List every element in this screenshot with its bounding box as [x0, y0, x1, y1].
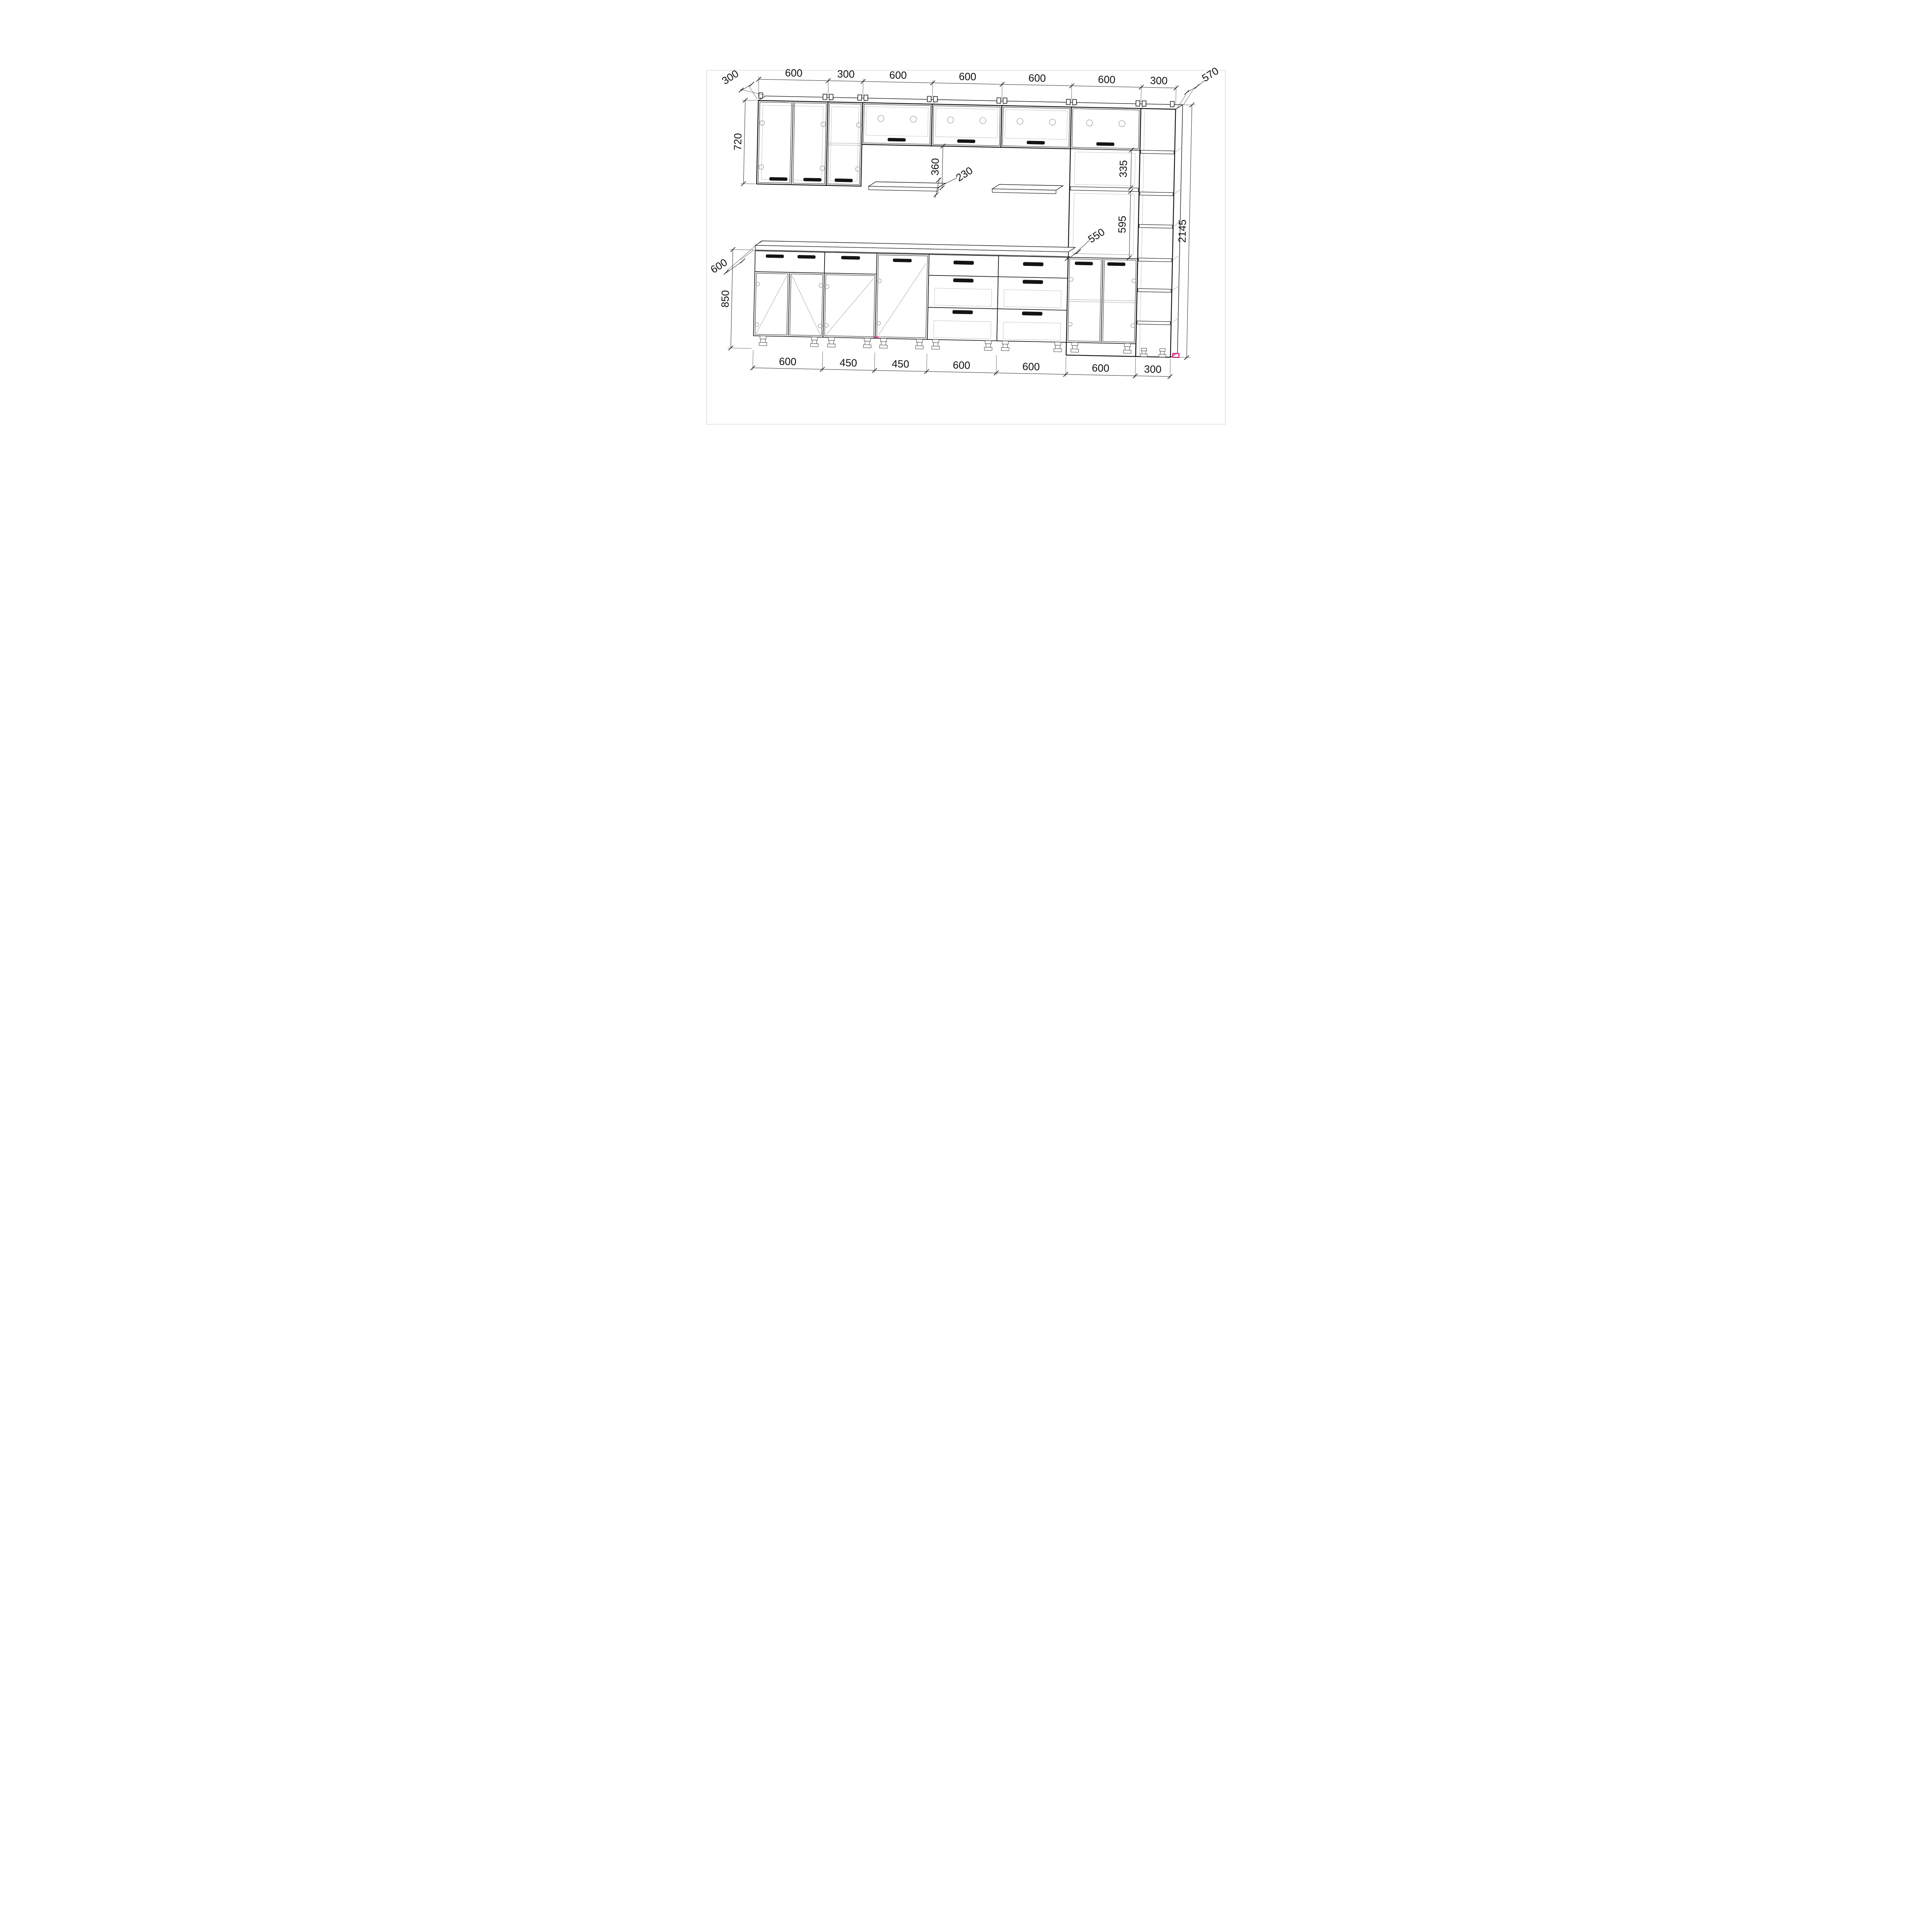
drawer-handle	[953, 279, 973, 282]
door-handle	[835, 179, 852, 182]
dim-tall-depth-label: 570	[1200, 65, 1221, 84]
dim-microwave-niche-label: 335	[1117, 160, 1129, 178]
flap-handle	[1096, 142, 1114, 146]
leg	[759, 336, 767, 345]
dim-top-3: 600	[889, 69, 907, 81]
leg	[827, 337, 835, 347]
drawer-unit-2	[997, 256, 1068, 342]
dim-top-6: 600	[1098, 73, 1116, 85]
leg	[879, 338, 888, 348]
leg	[1123, 344, 1131, 353]
door-handle	[769, 177, 787, 181]
drawer-handle	[952, 310, 973, 314]
dimension-bottom-chain: 600 450 450 600 600 600 300	[750, 350, 1173, 379]
drawing-sheet: 600 300 600 600 600 600 300	[706, 0, 1226, 426]
dim-oven-depth-label: 550	[1086, 226, 1107, 245]
flap-handle	[888, 138, 906, 141]
base-cabinet-600-sink	[753, 251, 825, 337]
column-base-cabinet	[1066, 257, 1138, 344]
dim-top-5: 600	[1028, 72, 1046, 84]
leg	[1071, 342, 1079, 352]
dim-oven-door-label: 595	[1116, 216, 1128, 233]
dimension-base-depth: 600	[708, 239, 762, 276]
leg	[1001, 341, 1009, 350]
dim-shelf-depth-label: 230	[954, 165, 975, 184]
drawer-handle	[841, 256, 860, 260]
flap-handle	[957, 139, 975, 143]
dim-bottom-6: 600	[1092, 362, 1110, 374]
dimension-oven-door: 595	[1116, 189, 1133, 260]
wall-cabinet-300	[826, 102, 863, 186]
dim-bottom-3: 450	[892, 358, 910, 370]
dim-wall-height-label: 720	[732, 133, 744, 151]
dimension-tall-depth: 570	[1176, 64, 1221, 110]
drawer-handle	[766, 255, 784, 258]
drawer-unit-1	[927, 254, 999, 341]
dim-base-height-label: 850	[719, 290, 731, 308]
drawer-handle	[1023, 280, 1043, 284]
leg	[863, 338, 871, 348]
dim-top-1: 600	[785, 67, 803, 79]
floating-shelf-right	[992, 184, 1063, 194]
dim-total-height-label: 2145	[1176, 219, 1188, 243]
floating-shelf-left	[869, 182, 945, 191]
dim-top-7: 300	[1150, 75, 1168, 87]
dim-bottom-7: 300	[1144, 363, 1162, 375]
dim-bottom-2: 450	[840, 357, 857, 369]
leg	[1159, 349, 1166, 357]
wall-cabinet-600-double	[757, 100, 828, 185]
dimension-microwave-niche: 335	[1117, 148, 1134, 190]
dim-bottom-5: 600	[1022, 361, 1040, 373]
door-handle	[803, 178, 821, 182]
drawer-handle	[1023, 262, 1043, 266]
leg	[1054, 342, 1062, 352]
dim-bottom-4: 600	[953, 359, 971, 371]
dim-bottom-1: 600	[779, 355, 797, 367]
dim-top-2: 300	[837, 68, 855, 80]
drawing-content: 600 300 600 600 600 600 300	[706, 54, 1221, 380]
door-handle	[893, 259, 912, 262]
drawer-handle	[954, 261, 974, 265]
drawer-handle	[798, 255, 815, 259]
leg	[984, 340, 992, 350]
flap-handle	[1027, 141, 1044, 145]
dimension-oven-depth: 550	[1065, 225, 1107, 262]
flap-cabinet-3	[1001, 105, 1071, 149]
door-handle	[1107, 262, 1125, 266]
door-handle	[1075, 262, 1093, 265]
drawer-handle	[1022, 311, 1042, 315]
leg	[1140, 348, 1147, 357]
end-shelf-unit	[1136, 104, 1183, 357]
flap-cabinet-2	[931, 104, 1002, 147]
kitchen-elevation-drawing: 600 300 600 600 600 600 300	[706, 0, 1226, 426]
leg	[915, 339, 923, 349]
wall-row-top-face	[759, 96, 1183, 109]
flap-cabinet-1	[862, 103, 932, 146]
base-cabinet-450-door	[875, 253, 929, 340]
dimension-wall-height: 720	[731, 98, 757, 186]
cabinet-legs	[759, 336, 1166, 357]
base-cabinet-450-drawer-door	[823, 252, 877, 338]
dim-top-4: 600	[959, 71, 976, 83]
dim-flap-to-shelf-label: 360	[929, 158, 941, 176]
leg	[810, 337, 818, 347]
leg	[932, 340, 940, 349]
